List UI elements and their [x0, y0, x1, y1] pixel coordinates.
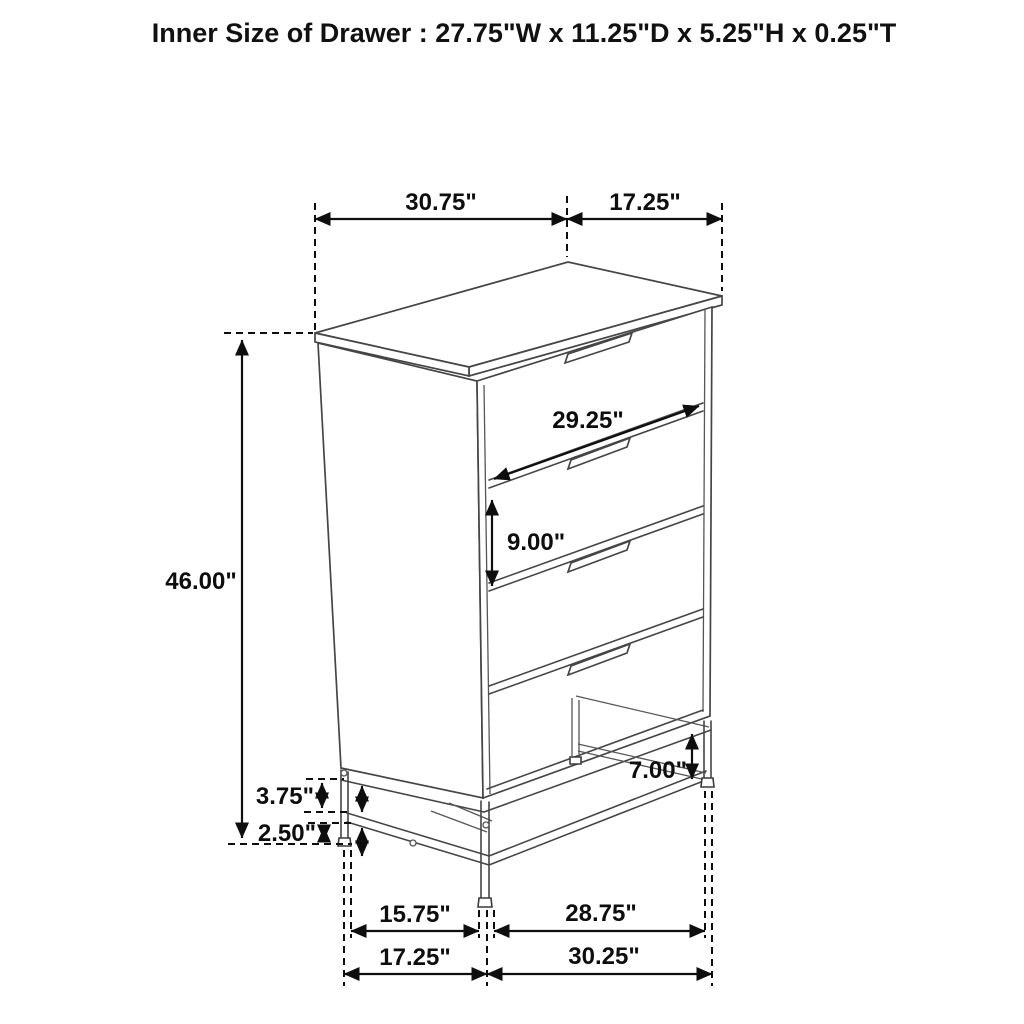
- screw-hole: [341, 770, 347, 776]
- dimension-label-base-depth: 17.25": [379, 944, 450, 971]
- dimension-label-top-width: 30.75": [405, 189, 476, 216]
- dimension-label-height: 46.00": [165, 568, 236, 595]
- dimension-label-leg-height: 7.00": [629, 757, 687, 784]
- dimension-base-clearance: 3.75": [256, 779, 362, 812]
- dimension-label-top-depth: 17.25": [609, 189, 680, 216]
- furniture-dimension-diagram: Inner Size of Drawer : 27.75"W x 11.25"D…: [0, 0, 1024, 1024]
- screw-hole: [410, 840, 416, 846]
- dimension-base-width: 30.25": [487, 943, 712, 974]
- chest-dimension-drawing: Inner Size of Drawer : 27.75"W x 11.25"D…: [0, 0, 1024, 1024]
- dimension-label-stretcher-height: 2.50": [258, 820, 316, 847]
- dimension-label-drawer-width: 29.25": [552, 407, 623, 434]
- chest-drawing: [315, 262, 722, 907]
- dimension-top-depth: 17.25": [567, 189, 722, 219]
- dimension-label-leg-span-depth: 15.75": [379, 901, 450, 928]
- screw-hole: [483, 822, 489, 828]
- dimension-label-base-width: 30.25": [568, 943, 639, 970]
- dimension-label-drawer-height: 9.00": [507, 529, 565, 556]
- dimension-top-width: 30.75": [315, 189, 567, 219]
- dimension-leg-span-width: 28.75": [494, 900, 705, 931]
- dimension-label-leg-span-width: 28.75": [565, 900, 636, 927]
- dimension-leg-span-depth: 15.75": [351, 901, 479, 931]
- dimension-label-base-clearance: 3.75": [256, 783, 314, 810]
- diagram-title: Inner Size of Drawer : 27.75"W x 11.25"D…: [152, 18, 897, 48]
- dimension-base-depth: 17.25": [344, 944, 487, 974]
- chest-side-panel: [318, 343, 483, 798]
